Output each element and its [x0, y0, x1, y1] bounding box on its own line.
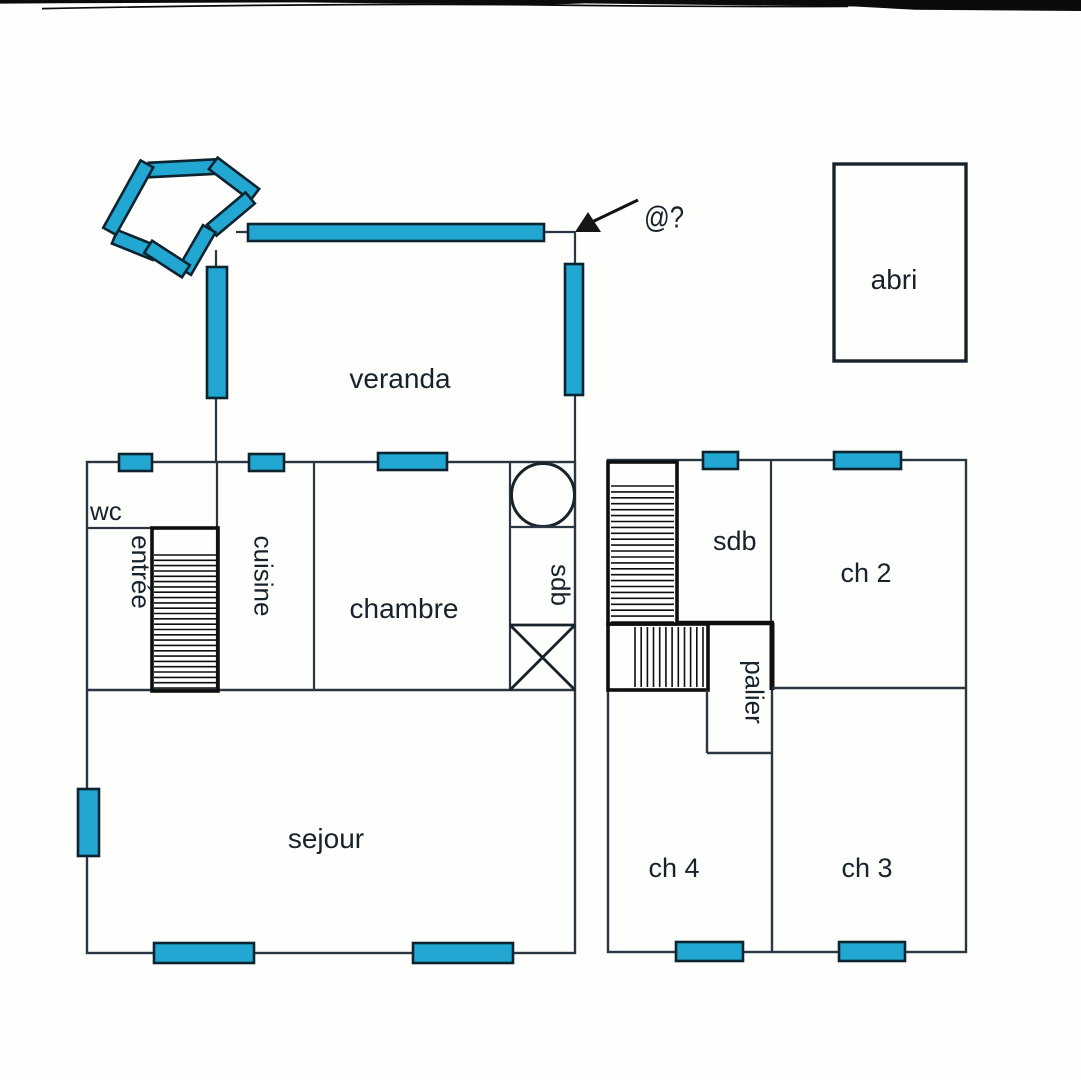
svg-text:palier: palier	[740, 660, 770, 724]
svg-text:entrée: entrée	[126, 535, 156, 609]
svg-text:ch 4: ch 4	[648, 853, 699, 883]
svg-text:chambre: chambre	[350, 593, 459, 624]
svg-text:@?: @?	[644, 200, 684, 235]
svg-text:veranda: veranda	[349, 363, 451, 394]
svg-text:ch 2: ch 2	[840, 558, 891, 588]
svg-text:ch 3: ch 3	[841, 853, 892, 883]
svg-text:cuisine: cuisine	[249, 536, 279, 617]
svg-text:sdb: sdb	[713, 526, 757, 556]
svg-text:abri: abri	[871, 264, 918, 295]
svg-text:sdb: sdb	[546, 564, 576, 606]
svg-text:wc: wc	[89, 496, 122, 526]
svg-text:sejour: sejour	[288, 823, 364, 854]
